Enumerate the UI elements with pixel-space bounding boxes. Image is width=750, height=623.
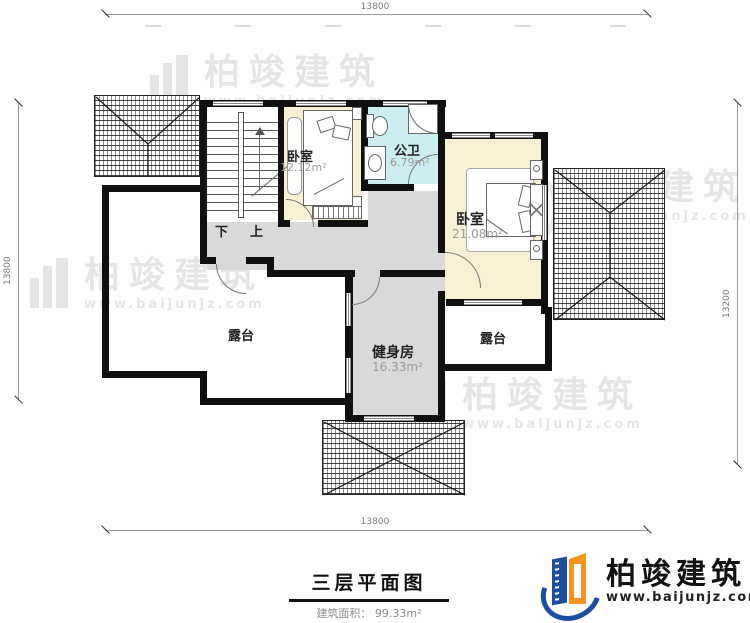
room-label-terrace-right: 露台 [480,328,506,347]
roof-hatch-right [553,168,665,320]
wall-segment [545,307,552,371]
stair-rail [238,112,244,218]
sink [368,154,382,172]
roof-hatch-top-left [94,95,200,177]
dimension-label-left: 13800 [3,225,13,285]
floor-plan-canvas: 柏竣建筑 www.baijunjz.com 柏竣建筑 www.baijunjz.… [0,0,750,623]
company-logo-brand: 柏竣建筑 [606,559,750,591]
drawing-title: 三层平面图 [280,568,458,595]
wardrobe [312,206,362,219]
wall-segment [361,184,414,191]
watermark-brand: 柏竣建筑 [204,55,385,91]
dimension-label-right: 13200 [722,258,732,318]
title-block: 三层平面图 建筑面积： 99.33m² [280,568,458,621]
lamp-icon [533,165,540,172]
subdimension-mark [145,25,161,27]
room-area-bathroom: 6.79m² [390,156,430,169]
building-area-label: 建筑面积： 99.33m² [280,605,458,621]
window [452,133,490,138]
company-logo-icon [538,550,598,614]
window [346,358,351,393]
window [495,133,533,138]
terrace-parapet-wall [102,185,109,378]
lamp-icon [533,245,540,252]
wall-segment [267,270,353,277]
subdimension-mark [610,25,626,27]
stair-arrow-head [255,122,265,135]
room-label-terrace-left: 露台 [228,325,254,344]
roof-ridge-lines [554,169,666,321]
subdimension-mark [515,25,531,27]
terrace-parapet-wall [102,185,207,192]
roof-hatch-bottom [322,420,465,495]
wall-segment [380,270,445,277]
dimension-line-top [105,14,648,15]
dimension-line-right [737,103,738,465]
window [364,416,414,421]
terrace-parapet-wall [102,371,207,378]
dimension-line-left [18,103,19,400]
logo-building-gap [574,564,581,598]
watermark-logo-icon [30,258,74,308]
floor-hallway [207,222,438,270]
room-area-bedroom-master: 21.08m² [452,227,503,241]
wall-segment [200,100,207,264]
door-swing-terrace [216,264,246,294]
company-logo-url: www.baijunjz.com [606,590,750,605]
wall-segment [200,257,216,264]
nightstand [352,107,362,120]
toilet [372,116,388,136]
subdimension-mark [325,25,341,27]
dimension-label-top: 13800 [330,2,420,12]
room-label-bedroom-master: 卧室 [456,209,484,229]
window [296,101,346,106]
roof-ridge-lines [95,96,201,178]
wall-segment [438,100,445,253]
wall-segment [318,220,368,227]
watermark-url: www.baijunjz.com [84,297,265,312]
title-underline [289,599,449,602]
window [213,101,263,106]
roof-ridge-lines [323,421,466,496]
room-label-gym: 健身房 [372,342,414,362]
logo-building-blue [552,557,567,606]
window [346,293,351,326]
terrace-parapet-wall [200,398,352,405]
wardrobe [530,184,543,236]
company-logo: 柏竣建筑 www.baijunjz.com [538,550,750,614]
room-area-bedroom-small: 12.12m² [280,161,327,174]
floor-hallway [368,191,438,222]
wall-segment [438,364,552,371]
stair-label-down: 下 [215,221,228,240]
wall-segment [438,291,445,422]
stair-arrow [259,128,260,190]
watermark-brand: 柏竣建筑 [462,378,643,414]
room-area-gym: 16.33m² [372,360,423,374]
stair-label-up: 上 [250,221,263,240]
subdimension-mark [235,25,251,27]
dimension-label-bottom: 13800 [330,517,420,527]
window [464,300,522,305]
dimension-line-bottom [105,530,648,531]
watermark-url: www.baijunjz.com [462,417,643,432]
subdimension-mark [425,25,441,27]
